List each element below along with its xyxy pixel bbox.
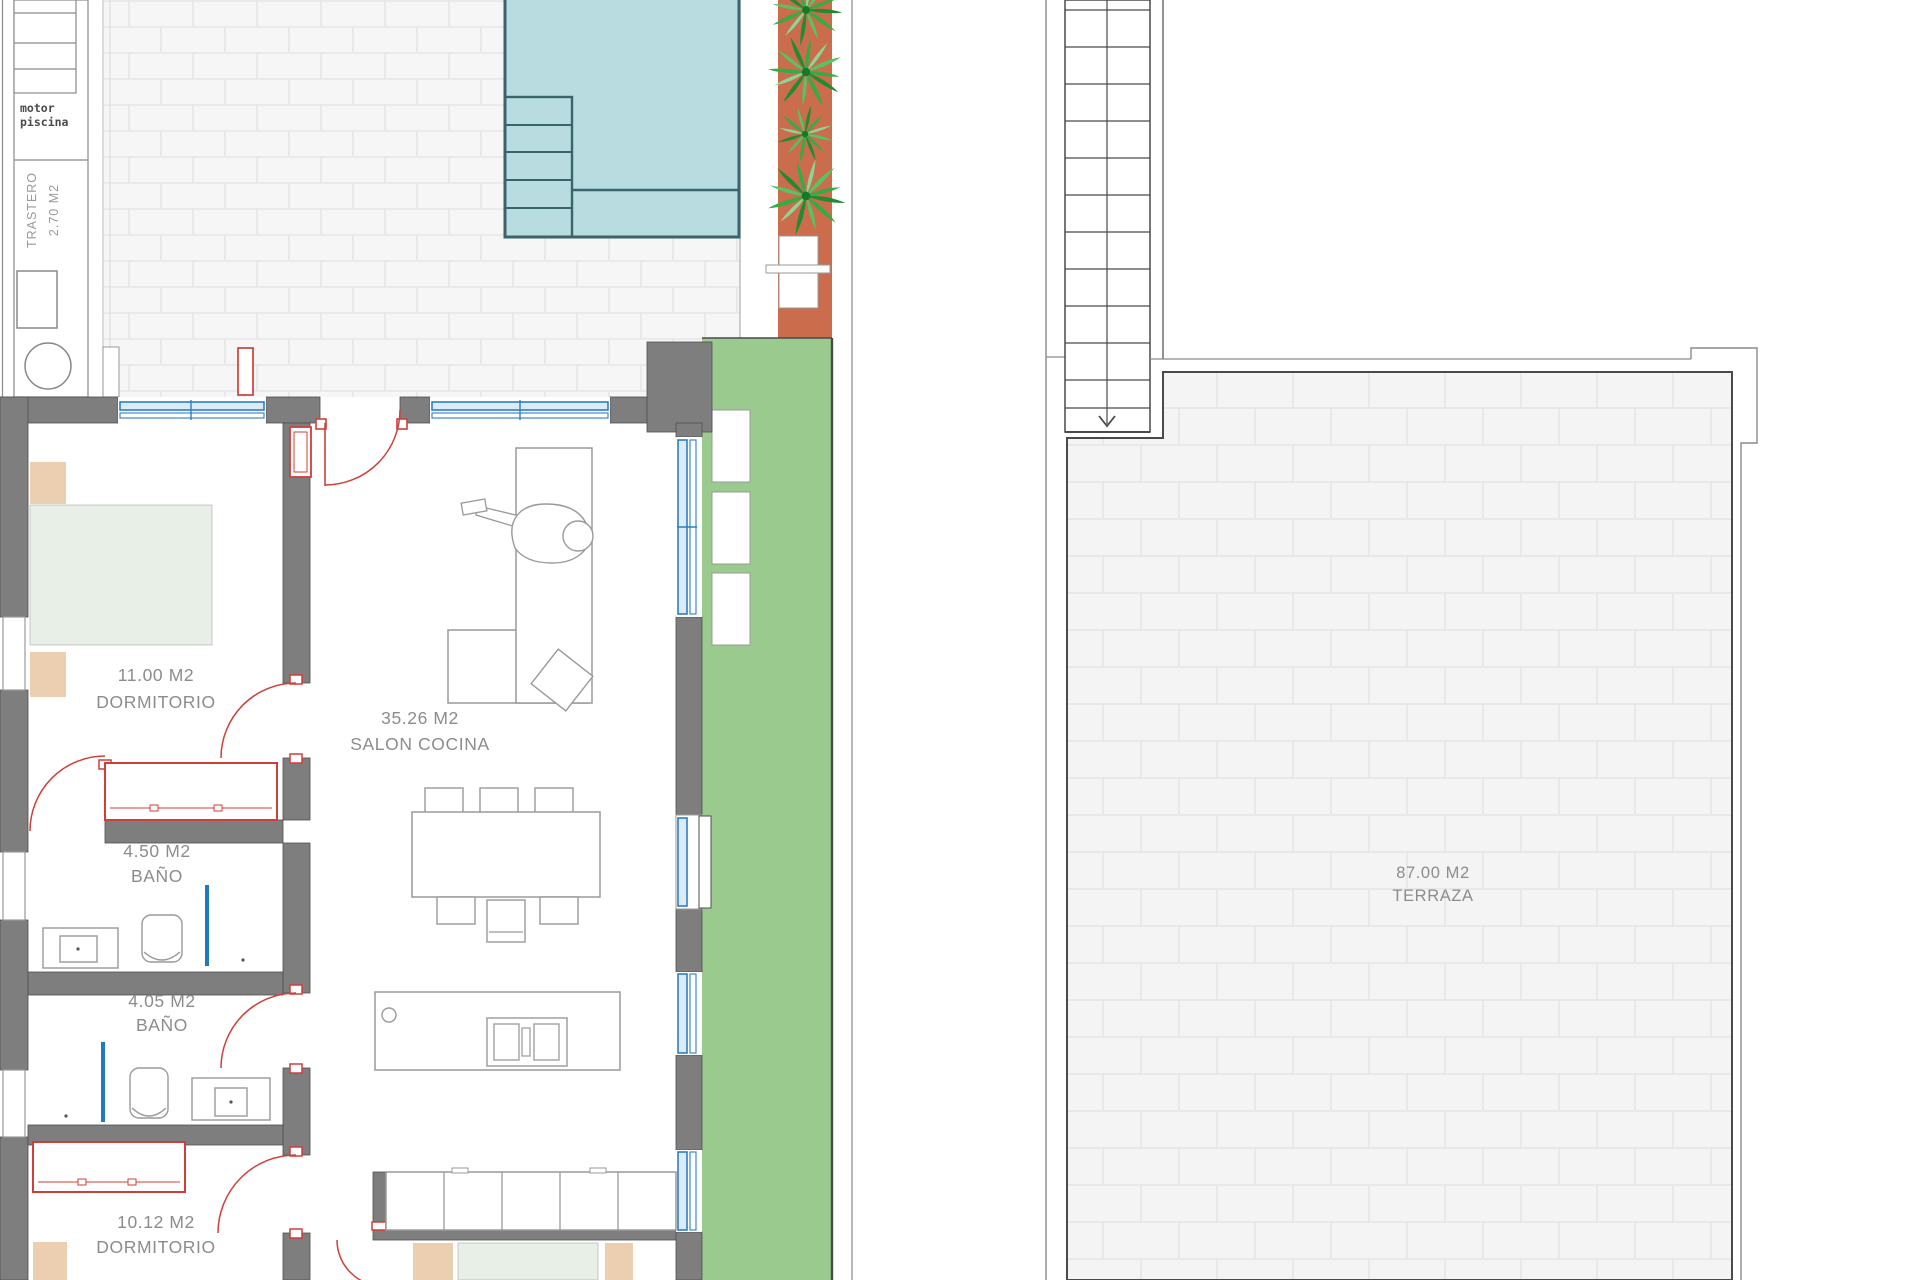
dormitorio1-furniture bbox=[30, 462, 212, 697]
left-wall-window bbox=[3, 617, 25, 690]
kitchen-island bbox=[375, 992, 620, 1070]
pool-motor-unit bbox=[17, 271, 57, 328]
left-wall-window bbox=[3, 1070, 25, 1137]
garden-gate-bar bbox=[766, 265, 830, 273]
chair bbox=[425, 788, 463, 813]
sliding-door-right bbox=[676, 815, 711, 909]
salon-furniture bbox=[375, 448, 676, 1230]
sink-drain bbox=[229, 1100, 232, 1103]
window-sill bbox=[120, 413, 264, 418]
wall-right bbox=[676, 907, 702, 972]
door-leaf bbox=[699, 816, 711, 908]
left-wall-window bbox=[3, 852, 25, 920]
wall-right bbox=[676, 423, 702, 437]
bano2-area-label: 4.05 M2 bbox=[128, 991, 195, 1011]
pool-water bbox=[505, 0, 739, 237]
bano2-name-label: BAÑO bbox=[136, 1014, 188, 1035]
garden-gate-panel bbox=[779, 236, 818, 268]
dormitorio1-name-label: DORMITORIO bbox=[96, 692, 215, 712]
wardrobe-tick bbox=[128, 1179, 136, 1185]
wall-right bbox=[676, 1055, 702, 1150]
lawn bbox=[702, 338, 832, 1280]
door-frame bbox=[290, 754, 302, 763]
bed bbox=[30, 505, 212, 645]
ground-floor-plan: motor piscina TRASTERO 2.70 M2 bbox=[0, 0, 858, 1280]
wall-left bbox=[0, 1137, 28, 1280]
swimming-pool bbox=[505, 0, 739, 237]
window-right-mid bbox=[676, 972, 702, 1055]
nightstand bbox=[605, 1243, 633, 1280]
stepping-stone bbox=[712, 573, 750, 645]
motor-tank bbox=[25, 343, 71, 389]
nightstand bbox=[30, 462, 66, 504]
wall-dorm1-bath1 bbox=[105, 820, 283, 843]
staircase bbox=[1065, 0, 1163, 432]
sink-counter bbox=[192, 1078, 270, 1120]
entry-pillar bbox=[238, 348, 253, 395]
chair bbox=[437, 897, 475, 924]
stepping-stone bbox=[712, 410, 750, 482]
nightstand bbox=[413, 1243, 453, 1280]
bed bbox=[458, 1243, 598, 1280]
wall-top bbox=[266, 397, 320, 423]
cooktop bbox=[487, 1018, 567, 1066]
door-frame bbox=[372, 1222, 386, 1230]
wardrobe-outline bbox=[105, 763, 277, 820]
window-right-bottom bbox=[676, 1150, 702, 1232]
entry-door bbox=[316, 410, 407, 486]
door-swing-arc bbox=[221, 993, 296, 1068]
terrace-plan: 87.00 M2 TERRAZA bbox=[1046, 0, 1757, 1280]
door-glass bbox=[678, 818, 687, 906]
cabinet-handle bbox=[452, 1168, 468, 1173]
door-swing-arc bbox=[325, 410, 400, 485]
stepping-stone bbox=[712, 492, 750, 564]
door-bano1 bbox=[30, 756, 111, 831]
chair bbox=[535, 788, 573, 813]
dormitorio2-name-label: DORMITORIO bbox=[96, 1237, 215, 1257]
dining-table bbox=[412, 812, 600, 897]
dormitorio1-area-label: 11.00 M2 bbox=[118, 665, 194, 685]
terraza-name-label: TERRAZA bbox=[1392, 887, 1473, 905]
door-bano2 bbox=[221, 985, 302, 1073]
window-sill bbox=[690, 1152, 696, 1230]
wardrobe-dormitorio2 bbox=[33, 1142, 185, 1192]
door-swing-arc bbox=[337, 1240, 383, 1280]
wall-interior-vertical bbox=[283, 1233, 310, 1280]
chair bbox=[487, 900, 525, 942]
terrace-tiles bbox=[1067, 372, 1732, 1280]
motor-piscina-label-line2: piscina bbox=[20, 115, 69, 129]
door-bottom-room bbox=[337, 1222, 386, 1280]
wardrobe-tick bbox=[214, 805, 222, 811]
cabinet-outline bbox=[386, 1172, 676, 1230]
window-glass bbox=[120, 402, 264, 410]
door-swing-arc bbox=[30, 756, 105, 831]
salon-name-label: SALON COCINA bbox=[350, 734, 489, 754]
bano2-fixtures bbox=[64, 1042, 270, 1122]
trastero-label-line2: 2.70 M2 bbox=[47, 184, 61, 236]
planter-strip bbox=[754, 0, 858, 338]
bano1-area-label: 4.50 M2 bbox=[123, 841, 190, 861]
bano1-name-label: BAÑO bbox=[131, 865, 183, 886]
door-swing-arc bbox=[221, 683, 296, 758]
dining-set bbox=[412, 788, 600, 942]
wall-interior-vertical bbox=[283, 1068, 310, 1155]
dormitorio2-area-label: 10.12 M2 bbox=[117, 1212, 195, 1232]
wardrobe-tick bbox=[150, 805, 158, 811]
motor-piscina-label-line1: motor bbox=[20, 101, 55, 115]
cabinet-handle bbox=[590, 1168, 606, 1173]
chair bbox=[480, 788, 518, 813]
door-frame bbox=[290, 1229, 302, 1238]
nightstand bbox=[30, 652, 66, 697]
wall-left bbox=[0, 920, 28, 1070]
wardrobe-outline bbox=[33, 1142, 185, 1192]
nightstand bbox=[33, 1242, 67, 1280]
wall-left bbox=[0, 690, 28, 852]
wall-right bbox=[676, 1232, 702, 1280]
door-dormitorio2 bbox=[218, 1147, 302, 1238]
patio-step bbox=[103, 347, 119, 397]
shower-drain bbox=[64, 1114, 67, 1117]
window-sill bbox=[690, 974, 696, 1053]
wardrobe-tick bbox=[78, 1179, 86, 1185]
garden-gate-panel bbox=[779, 272, 818, 308]
storage-strip: motor piscina TRASTERO 2.70 M2 bbox=[14, 0, 88, 397]
shaft-outline bbox=[290, 427, 311, 477]
hall-shaft bbox=[290, 427, 311, 477]
wall-left bbox=[0, 397, 28, 617]
window-glass bbox=[678, 974, 687, 1053]
wardrobe-dormitorio1 bbox=[105, 763, 277, 820]
terraza-area-label: 87.00 M2 bbox=[1396, 864, 1470, 882]
door-swing-arc bbox=[218, 1155, 296, 1233]
bano1-fixtures bbox=[43, 885, 245, 968]
person-head bbox=[563, 521, 593, 551]
wall-interior-vertical bbox=[283, 843, 310, 993]
wall-interior-vertical bbox=[283, 758, 310, 820]
salon-area-label: 35.26 M2 bbox=[381, 708, 459, 728]
window-right-long bbox=[676, 437, 702, 617]
wall-corner-block bbox=[647, 342, 712, 432]
cabinet-run bbox=[386, 1168, 676, 1230]
window-dormitorio1 bbox=[118, 397, 266, 423]
faucet bbox=[382, 1008, 396, 1022]
wall-right bbox=[676, 617, 702, 817]
chair bbox=[540, 897, 578, 924]
floor-plan-canvas: motor piscina TRASTERO 2.70 M2 bbox=[0, 0, 1920, 1280]
door-dormitorio1 bbox=[221, 675, 302, 763]
window-glass bbox=[678, 1152, 687, 1230]
door-frame bbox=[290, 1064, 302, 1073]
exterior-steps bbox=[14, 0, 76, 93]
wall-top bbox=[610, 397, 647, 423]
sink-drain bbox=[76, 947, 79, 950]
shower-drain bbox=[241, 958, 244, 961]
window-salon bbox=[430, 397, 610, 423]
trastero-label-line1: TRASTERO bbox=[25, 172, 39, 248]
